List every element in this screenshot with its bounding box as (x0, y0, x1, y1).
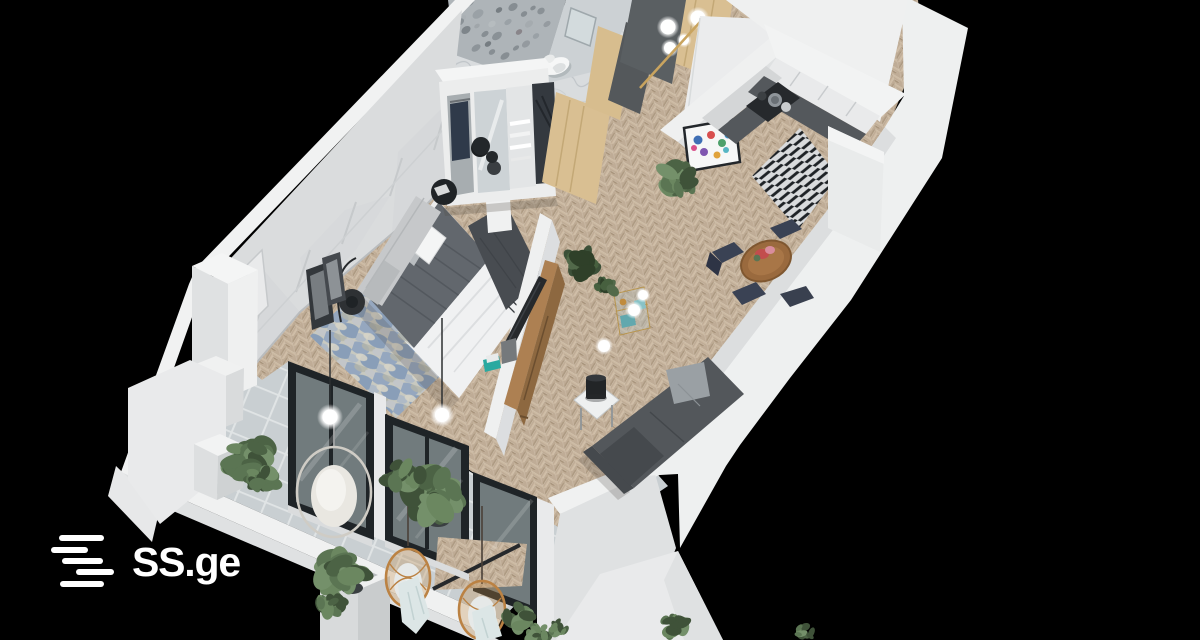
svg-text:SS.ge: SS.ge (132, 539, 240, 585)
